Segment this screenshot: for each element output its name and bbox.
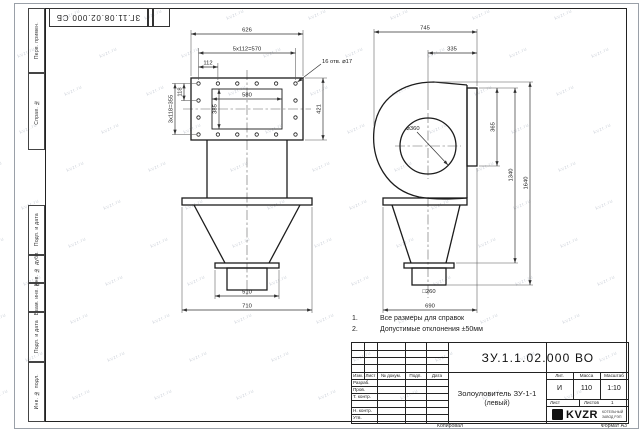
dim-385: 385 — [213, 104, 219, 114]
company-subtitle-1: КОТЕЛЬНЫЙ — [602, 410, 623, 414]
listov-value: 1 — [611, 400, 614, 405]
front-view-extension-lines — [172, 30, 327, 313]
dim-690: 690 — [425, 304, 435, 310]
product-name: Золоуловитель ЗУ-1-1 — [458, 389, 537, 398]
note-2-number: 2. — [352, 326, 358, 333]
dim-510: 510 — [242, 290, 252, 296]
mass-label: Масса — [573, 373, 600, 378]
list-label: Лист — [550, 400, 560, 405]
side-view-outline — [374, 82, 477, 285]
dim-626: 626 — [242, 28, 252, 34]
lit-value: И — [546, 385, 573, 392]
front-view-centerlines — [183, 70, 311, 296]
dim-580: 580 — [242, 93, 252, 99]
dim-1340: 1340 — [509, 169, 515, 182]
product-variant: (левый) — [484, 400, 509, 407]
front-view: 626 5x112=570 112 580 385 118 3x118=355 … — [169, 28, 353, 314]
dim-dia-360: ⌀360 — [406, 126, 419, 132]
col-header-podp: Подп. — [405, 373, 426, 378]
doc-number: ЗУ.1.1.02.000 ВО — [482, 351, 595, 365]
dim-5x112-570: 5x112=570 — [233, 47, 261, 53]
doc-number-cell: ЗУ.1.1.02.000 ВО — [448, 343, 628, 372]
col-header-izm: Изм. — [352, 373, 364, 378]
dim-365: 365 — [491, 122, 497, 132]
dim-260-square: □260 — [422, 289, 435, 295]
company-logo-text: KVZR — [566, 409, 598, 421]
dim-745: 745 — [420, 26, 430, 32]
side-view: 745 335 365 1340 1640 690 □260 ⌀360 — [374, 26, 533, 314]
row-utv: Утв. — [353, 415, 362, 420]
company-subtitle-2: ЗАВОД РЭП — [602, 415, 621, 419]
dim-112: 112 — [203, 61, 212, 67]
row-razrab: Разраб. — [353, 380, 370, 385]
scale-value: 1:10 — [600, 385, 628, 392]
row-nkontr: Н. контр. — [353, 408, 372, 413]
title-block: ЗУ.1.1.02.000 ВО Изм. Лист № докум. Подп… — [351, 342, 629, 424]
format-label: Формат A3 — [557, 423, 627, 429]
company-logo-icon — [552, 409, 563, 420]
row-prov: Пров. — [353, 387, 365, 392]
mass-value: 110 — [573, 385, 600, 392]
dim-118: 118 — [178, 87, 184, 96]
col-header-dokum: № докум. — [377, 373, 405, 378]
dim-421: 421 — [317, 104, 323, 114]
side-view-dimensions: 745 335 365 1340 1640 690 □260 ⌀360 — [374, 26, 530, 311]
scale-label: Масштаб — [600, 373, 628, 378]
dim-335: 335 — [447, 47, 457, 53]
listov-label: Листов — [584, 400, 599, 405]
row-tkontr: Т. контр. — [353, 394, 371, 399]
copied-label: Копировал — [410, 423, 490, 429]
col-header-data: Дата — [426, 373, 448, 378]
dim-3x118-355: 3x118=355 — [169, 95, 175, 123]
note-1-number: 1. — [352, 315, 358, 322]
dim-710: 710 — [242, 304, 252, 310]
drawing-sheet: kvzr.rukvzr.rukvzr.rukvzr.rukvzr.rukvzr.… — [0, 0, 644, 430]
dim-1640: 1640 — [524, 177, 530, 190]
col-header-list: Лист — [364, 373, 377, 378]
project-name-cell: Золоуловитель ЗУ-1-1 (левый) — [448, 372, 546, 423]
note-1-text: Все размеры для справок — [380, 315, 464, 322]
note-2-text: Допустимые отклонения ±50мм — [380, 326, 483, 333]
lit-label: Лит. — [546, 373, 573, 378]
holes-callout: 16 отв. ⌀17 — [322, 59, 352, 65]
